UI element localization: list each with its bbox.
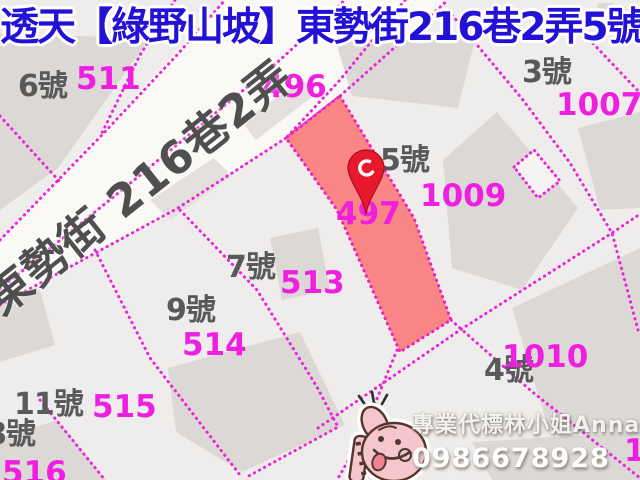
watermark-phone-number: 0986678928: [412, 443, 610, 474]
listing-map-screenshot: 6號3號5號7號9號4號11號8號51149610071009497513514…: [0, 0, 640, 480]
location-pin-icon[interactable]: [348, 150, 384, 214]
listing-title: 透天【綠野山坡】東勢街216巷2弄5號: [0, 6, 640, 50]
watermark-agent-name: 專業代標林小姐Anna: [412, 407, 640, 439]
